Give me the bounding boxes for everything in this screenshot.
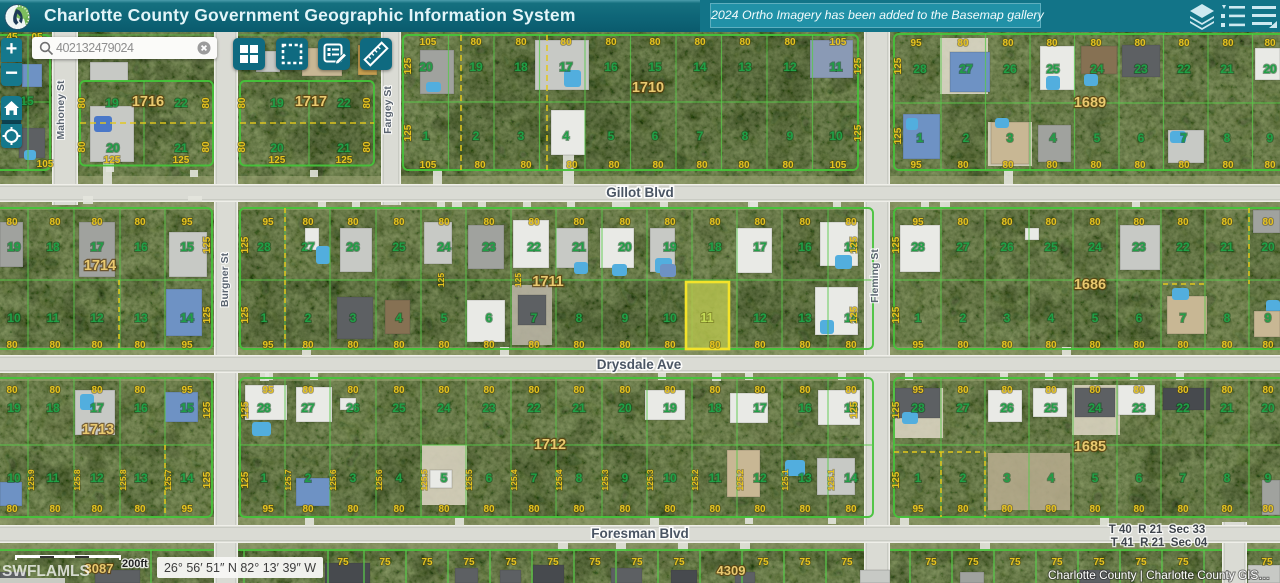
svg-text:125.2: 125.2 (735, 469, 745, 491)
svg-text:75: 75 (1177, 557, 1189, 568)
svg-text:80: 80 (1178, 160, 1190, 171)
svg-text:75: 75 (589, 557, 601, 568)
svg-text:80: 80 (201, 97, 212, 109)
svg-text:6: 6 (1136, 471, 1143, 485)
svg-text:16: 16 (134, 401, 148, 415)
svg-text:80: 80 (845, 504, 857, 515)
svg-text:6: 6 (486, 471, 493, 485)
svg-text:80: 80 (1089, 340, 1101, 351)
svg-text:18: 18 (708, 401, 722, 415)
svg-text:80: 80 (799, 385, 811, 396)
svg-text:125.5: 125.5 (464, 469, 474, 491)
svg-text:13: 13 (798, 311, 812, 325)
svg-text:80: 80 (709, 385, 721, 396)
svg-text:125.7: 125.7 (163, 469, 173, 491)
svg-text:80: 80 (957, 340, 969, 351)
svg-text:95: 95 (181, 217, 193, 228)
svg-text:80: 80 (347, 504, 359, 515)
svg-text:80: 80 (1133, 340, 1145, 351)
svg-text:12: 12 (753, 311, 767, 325)
svg-text:80: 80 (845, 217, 857, 228)
svg-text:20: 20 (106, 141, 120, 155)
svg-text:80: 80 (560, 37, 572, 48)
svg-text:8: 8 (1224, 311, 1231, 325)
svg-text:Drysdale Ave: Drysdale Ave (597, 357, 682, 372)
svg-text:80: 80 (438, 504, 450, 515)
svg-text:125: 125 (202, 401, 213, 418)
svg-text:80: 80 (91, 385, 103, 396)
svg-text:12: 12 (90, 311, 104, 325)
svg-text:15: 15 (180, 240, 194, 254)
svg-text:80: 80 (1090, 160, 1102, 171)
svg-text:75: 75 (631, 557, 643, 568)
svg-text:10: 10 (663, 311, 677, 325)
svg-text:125: 125 (240, 471, 251, 488)
svg-text:80: 80 (515, 37, 527, 48)
svg-text:200ft: 200ft (122, 558, 148, 570)
svg-text:125: 125 (849, 306, 860, 323)
svg-text:1716: 1716 (132, 94, 164, 110)
svg-text:95: 95 (912, 504, 924, 515)
svg-text:95: 95 (910, 38, 922, 49)
svg-text:95: 95 (910, 160, 922, 171)
svg-text:1: 1 (423, 129, 430, 143)
svg-text:80: 80 (1221, 340, 1233, 351)
svg-text:4: 4 (563, 129, 570, 143)
svg-text:75: 75 (421, 557, 433, 568)
svg-text:80: 80 (1089, 217, 1101, 228)
svg-text:14: 14 (844, 471, 858, 485)
svg-text:125.1: 125.1 (826, 469, 836, 491)
svg-text:125: 125 (891, 401, 902, 418)
svg-text:75: 75 (967, 557, 979, 568)
svg-text:80: 80 (1178, 38, 1190, 49)
svg-text:80: 80 (347, 340, 359, 351)
svg-text:80: 80 (664, 385, 676, 396)
svg-text:80: 80 (134, 504, 146, 515)
svg-text:19: 19 (469, 60, 483, 74)
svg-text:5: 5 (441, 311, 448, 325)
svg-text:25: 25 (1044, 240, 1058, 254)
svg-text:95: 95 (912, 385, 924, 396)
svg-text:80: 80 (1262, 217, 1274, 228)
svg-text:105: 105 (830, 37, 847, 48)
svg-text:125: 125 (202, 236, 213, 253)
svg-text:3: 3 (1004, 311, 1011, 325)
svg-text:80: 80 (49, 340, 61, 351)
svg-text:80: 80 (77, 141, 88, 153)
svg-text:22: 22 (1177, 62, 1191, 76)
svg-text:26: 26 (346, 240, 360, 254)
svg-text:80: 80 (393, 504, 405, 515)
svg-text:75: 75 (1051, 557, 1063, 568)
svg-text:7: 7 (531, 471, 538, 485)
svg-text:125.3: 125.3 (600, 469, 610, 491)
svg-text:80: 80 (738, 160, 750, 171)
svg-text:80: 80 (134, 385, 146, 396)
svg-text:125.7: 125.7 (283, 469, 293, 491)
svg-text:125: 125 (104, 155, 121, 166)
svg-text:4: 4 (1048, 311, 1055, 325)
svg-text:21: 21 (1220, 401, 1234, 415)
svg-text:21: 21 (572, 240, 586, 254)
svg-text:10: 10 (7, 471, 21, 485)
svg-text:125: 125 (853, 124, 864, 141)
svg-text:125: 125 (336, 155, 353, 166)
svg-text:2: 2 (963, 131, 970, 145)
svg-text:125: 125 (893, 57, 904, 74)
svg-text:18: 18 (46, 401, 60, 415)
svg-text:24: 24 (437, 401, 451, 415)
svg-text:125: 125 (240, 401, 251, 418)
svg-text:7: 7 (1180, 311, 1187, 325)
svg-text:Mahoney St: Mahoney St (55, 80, 67, 139)
svg-text:9: 9 (787, 129, 794, 143)
svg-text:125.1: 125.1 (780, 469, 790, 491)
svg-text:80: 80 (474, 160, 486, 171)
svg-text:Fargey St: Fargey St (382, 86, 394, 134)
svg-text:80: 80 (664, 340, 676, 351)
svg-text:22: 22 (527, 401, 541, 415)
svg-text:25: 25 (392, 401, 406, 415)
svg-text:75: 75 (799, 557, 811, 568)
svg-text:11: 11 (47, 471, 60, 485)
svg-text:18: 18 (514, 60, 528, 74)
svg-text:80: 80 (957, 160, 969, 171)
svg-text:80: 80 (754, 217, 766, 228)
svg-text:1717: 1717 (295, 94, 327, 110)
svg-text:23: 23 (1132, 401, 1146, 415)
svg-text:80: 80 (237, 97, 248, 109)
svg-text:105: 105 (420, 160, 437, 171)
svg-text:20: 20 (1263, 62, 1277, 76)
svg-text:80: 80 (1177, 340, 1189, 351)
svg-text:13: 13 (738, 60, 752, 74)
svg-text:20: 20 (618, 401, 632, 415)
svg-text:80: 80 (1046, 38, 1058, 49)
svg-text:80: 80 (957, 217, 969, 228)
svg-text:80: 80 (302, 340, 314, 351)
svg-text:27: 27 (956, 240, 970, 254)
svg-text:105: 105 (830, 160, 847, 171)
svg-text:4309: 4309 (717, 563, 746, 578)
svg-text:19: 19 (663, 240, 677, 254)
svg-text:80: 80 (134, 217, 146, 228)
svg-text:125.6: 125.6 (374, 469, 384, 491)
svg-text:23: 23 (482, 401, 496, 415)
svg-text:80: 80 (1133, 217, 1145, 228)
svg-text:1: 1 (917, 131, 924, 145)
svg-text:16: 16 (798, 240, 812, 254)
svg-text:17: 17 (753, 401, 767, 415)
svg-text:T 41 R 21 Sec 04: T 41 R 21 Sec 04 (1111, 537, 1208, 549)
svg-text:80: 80 (754, 340, 766, 351)
svg-text:4: 4 (1050, 131, 1057, 145)
svg-text:2: 2 (960, 471, 967, 485)
svg-text:125.3: 125.3 (645, 469, 655, 491)
svg-text:12: 12 (90, 471, 104, 485)
svg-text:25: 25 (1044, 401, 1058, 415)
svg-text:16: 16 (798, 401, 812, 415)
svg-text:80: 80 (6, 217, 18, 228)
svg-text:19: 19 (105, 96, 119, 110)
svg-text:13: 13 (798, 471, 812, 485)
svg-text:80: 80 (302, 385, 314, 396)
svg-text:80: 80 (91, 504, 103, 515)
svg-text:1710: 1710 (632, 80, 664, 96)
svg-text:80: 80 (1001, 340, 1013, 351)
svg-text:95: 95 (262, 217, 274, 228)
svg-text:80: 80 (619, 504, 631, 515)
svg-text:Foresman Blvd: Foresman Blvd (591, 526, 689, 541)
svg-text:2: 2 (305, 471, 312, 485)
svg-text:125: 125 (403, 57, 414, 74)
svg-text:8: 8 (1224, 131, 1231, 145)
svg-text:125.5: 125.5 (419, 469, 429, 491)
svg-text:75: 75 (1135, 557, 1147, 568)
svg-text:80: 80 (754, 504, 766, 515)
svg-text:80: 80 (1221, 504, 1233, 515)
svg-text:80: 80 (1045, 340, 1057, 351)
svg-text:80: 80 (528, 217, 540, 228)
svg-text:17: 17 (559, 60, 573, 74)
svg-text:5: 5 (608, 129, 615, 143)
svg-text:18: 18 (46, 240, 60, 254)
svg-text:80: 80 (694, 37, 706, 48)
svg-text:22: 22 (527, 240, 541, 254)
svg-text:80: 80 (347, 217, 359, 228)
svg-text:125: 125 (240, 306, 251, 323)
svg-text:26: 26 (346, 401, 360, 415)
svg-text:26° 56′ 51″ N 82° 13′ 39″ W: 26° 56′ 51″ N 82° 13′ 39″ W (164, 561, 316, 575)
svg-text:2: 2 (473, 129, 480, 143)
svg-text:80: 80 (393, 340, 405, 351)
svg-text:80: 80 (573, 385, 585, 396)
svg-text:6: 6 (1136, 311, 1143, 325)
svg-text:80: 80 (438, 385, 450, 396)
svg-text:125: 125 (269, 155, 286, 166)
svg-text:75: 75 (505, 557, 517, 568)
svg-text:80: 80 (470, 37, 482, 48)
svg-text:80: 80 (483, 217, 495, 228)
svg-text:4: 4 (396, 471, 403, 485)
svg-text:125.9: 125.9 (26, 469, 36, 491)
svg-text:125: 125 (202, 306, 213, 323)
svg-text:26: 26 (1000, 401, 1014, 415)
svg-text:8: 8 (742, 129, 749, 143)
svg-text:16: 16 (604, 60, 618, 74)
svg-text:6: 6 (486, 311, 493, 325)
svg-text:80: 80 (237, 141, 248, 153)
svg-text:80: 80 (1089, 385, 1101, 396)
svg-text:80: 80 (1264, 160, 1276, 171)
svg-text:20: 20 (1261, 240, 1275, 254)
svg-text:80: 80 (957, 385, 969, 396)
svg-text:80: 80 (845, 385, 857, 396)
svg-text:125.8: 125.8 (72, 469, 82, 491)
svg-text:80: 80 (1222, 38, 1234, 49)
svg-text:20: 20 (1261, 401, 1275, 415)
svg-text:80: 80 (1001, 504, 1013, 515)
svg-text:27: 27 (959, 62, 973, 76)
svg-text:75: 75 (757, 557, 769, 568)
svg-text:80: 80 (652, 160, 664, 171)
svg-text:80: 80 (1002, 160, 1014, 171)
svg-text:75: 75 (841, 557, 853, 568)
svg-text:22: 22 (1176, 240, 1190, 254)
svg-text:80: 80 (619, 340, 631, 351)
svg-text:80: 80 (483, 340, 495, 351)
svg-text:T 40 R 21 Sec 33: T 40 R 21 Sec 33 (1109, 524, 1206, 536)
svg-text:125.8: 125.8 (118, 469, 128, 491)
svg-text:Burgner St: Burgner St (219, 252, 231, 307)
svg-text:13: 13 (134, 311, 148, 325)
svg-text:15: 15 (20, 94, 34, 108)
svg-text:80: 80 (784, 37, 796, 48)
svg-text:80: 80 (393, 385, 405, 396)
svg-text:80: 80 (782, 160, 794, 171)
svg-text:9: 9 (1265, 471, 1272, 485)
svg-text:80: 80 (799, 217, 811, 228)
svg-text:80: 80 (520, 160, 532, 171)
svg-text:80: 80 (799, 504, 811, 515)
svg-text:1686: 1686 (1074, 277, 1106, 293)
svg-text:80: 80 (49, 385, 61, 396)
svg-text:80: 80 (799, 340, 811, 351)
svg-text:7: 7 (1180, 471, 1187, 485)
svg-text:3: 3 (518, 129, 525, 143)
svg-text:80: 80 (1089, 504, 1101, 515)
svg-text:18: 18 (708, 240, 722, 254)
svg-text:28: 28 (257, 401, 271, 415)
svg-text:80: 80 (664, 504, 676, 515)
svg-text:80: 80 (709, 340, 721, 351)
svg-text:Gillot Blvd: Gillot Blvd (606, 185, 674, 200)
svg-text:75: 75 (1261, 557, 1273, 568)
svg-text:80: 80 (1090, 38, 1102, 49)
svg-text:80: 80 (664, 217, 676, 228)
svg-text:1713: 1713 (82, 422, 114, 438)
svg-text:80: 80 (1264, 38, 1276, 49)
svg-text:80: 80 (91, 340, 103, 351)
svg-text:1689: 1689 (1074, 95, 1106, 111)
svg-text:24: 24 (1088, 240, 1102, 254)
svg-text:80: 80 (605, 37, 617, 48)
svg-text:12: 12 (783, 60, 797, 74)
svg-text:1711: 1711 (532, 274, 563, 290)
svg-text:80: 80 (1002, 38, 1014, 49)
svg-text:23: 23 (482, 240, 496, 254)
svg-text:27: 27 (956, 401, 970, 415)
svg-text:125: 125 (240, 236, 251, 253)
svg-text:80: 80 (696, 160, 708, 171)
svg-text:80: 80 (1262, 385, 1274, 396)
svg-text:21: 21 (1220, 240, 1234, 254)
svg-text:125.2: 125.2 (690, 469, 700, 491)
svg-text:10: 10 (663, 471, 677, 485)
svg-text:80: 80 (362, 97, 373, 109)
svg-text:95: 95 (912, 217, 924, 228)
svg-text:80: 80 (1262, 504, 1274, 515)
svg-text:80: 80 (1134, 38, 1146, 49)
svg-text:80: 80 (134, 340, 146, 351)
svg-text:21: 21 (337, 141, 351, 155)
svg-text:11: 11 (700, 311, 713, 325)
svg-text:3: 3 (1007, 131, 1014, 145)
svg-text:80: 80 (6, 504, 18, 515)
svg-text:1712: 1712 (534, 437, 566, 453)
svg-text:11: 11 (830, 60, 843, 74)
svg-text:80: 80 (573, 217, 585, 228)
svg-text:14: 14 (180, 311, 194, 325)
svg-text:24: 24 (1090, 62, 1104, 76)
svg-text:80: 80 (1001, 217, 1013, 228)
svg-text:1: 1 (261, 311, 268, 325)
svg-text:22: 22 (337, 96, 351, 110)
svg-text:95: 95 (262, 385, 274, 396)
svg-text:80: 80 (6, 340, 18, 351)
svg-text:80: 80 (1134, 160, 1146, 171)
svg-text:15: 15 (180, 401, 194, 415)
svg-text:95: 95 (181, 340, 193, 351)
svg-text:95: 95 (181, 504, 193, 515)
svg-text:75: 75 (463, 557, 475, 568)
svg-text:80: 80 (1133, 385, 1145, 396)
svg-text:20: 20 (270, 141, 284, 155)
svg-text:8: 8 (576, 311, 583, 325)
svg-text:1: 1 (915, 311, 922, 325)
svg-text:125.4: 125.4 (554, 469, 564, 491)
svg-text:95: 95 (262, 504, 274, 515)
svg-text:24: 24 (1088, 401, 1102, 415)
svg-text:21: 21 (572, 401, 586, 415)
svg-text:80: 80 (6, 385, 18, 396)
svg-text:7: 7 (531, 311, 538, 325)
svg-text:80: 80 (1133, 504, 1145, 515)
svg-text:80: 80 (566, 160, 578, 171)
svg-text:125: 125 (891, 306, 902, 323)
svg-text:125: 125 (403, 124, 414, 141)
svg-text:20: 20 (419, 60, 433, 74)
svg-text:16: 16 (134, 240, 148, 254)
svg-text:3: 3 (350, 311, 357, 325)
svg-text:80: 80 (957, 504, 969, 515)
svg-text:80: 80 (393, 217, 405, 228)
svg-text:5: 5 (1092, 471, 1099, 485)
svg-text:125: 125 (436, 273, 446, 287)
svg-text:9: 9 (622, 471, 629, 485)
svg-text:80: 80 (957, 38, 969, 49)
svg-text:8: 8 (1224, 471, 1231, 485)
svg-text:80: 80 (438, 340, 450, 351)
svg-text:4: 4 (396, 311, 403, 325)
svg-text:10: 10 (829, 129, 843, 143)
svg-text:75: 75 (337, 557, 349, 568)
svg-text:125: 125 (853, 57, 864, 74)
svg-text:80: 80 (528, 504, 540, 515)
svg-text:5: 5 (441, 471, 448, 485)
svg-text:23: 23 (1134, 62, 1148, 76)
svg-text:95: 95 (262, 340, 274, 351)
svg-text:105: 105 (420, 37, 437, 48)
svg-text:80: 80 (1221, 217, 1233, 228)
svg-text:75: 75 (1009, 557, 1021, 568)
svg-text:1: 1 (261, 471, 268, 485)
svg-text:19: 19 (7, 240, 21, 254)
svg-text:Charlotte County | Charlotte C: Charlotte County | Charlotte County GIS… (1048, 568, 1270, 582)
svg-text:80: 80 (91, 217, 103, 228)
svg-text:80: 80 (573, 340, 585, 351)
